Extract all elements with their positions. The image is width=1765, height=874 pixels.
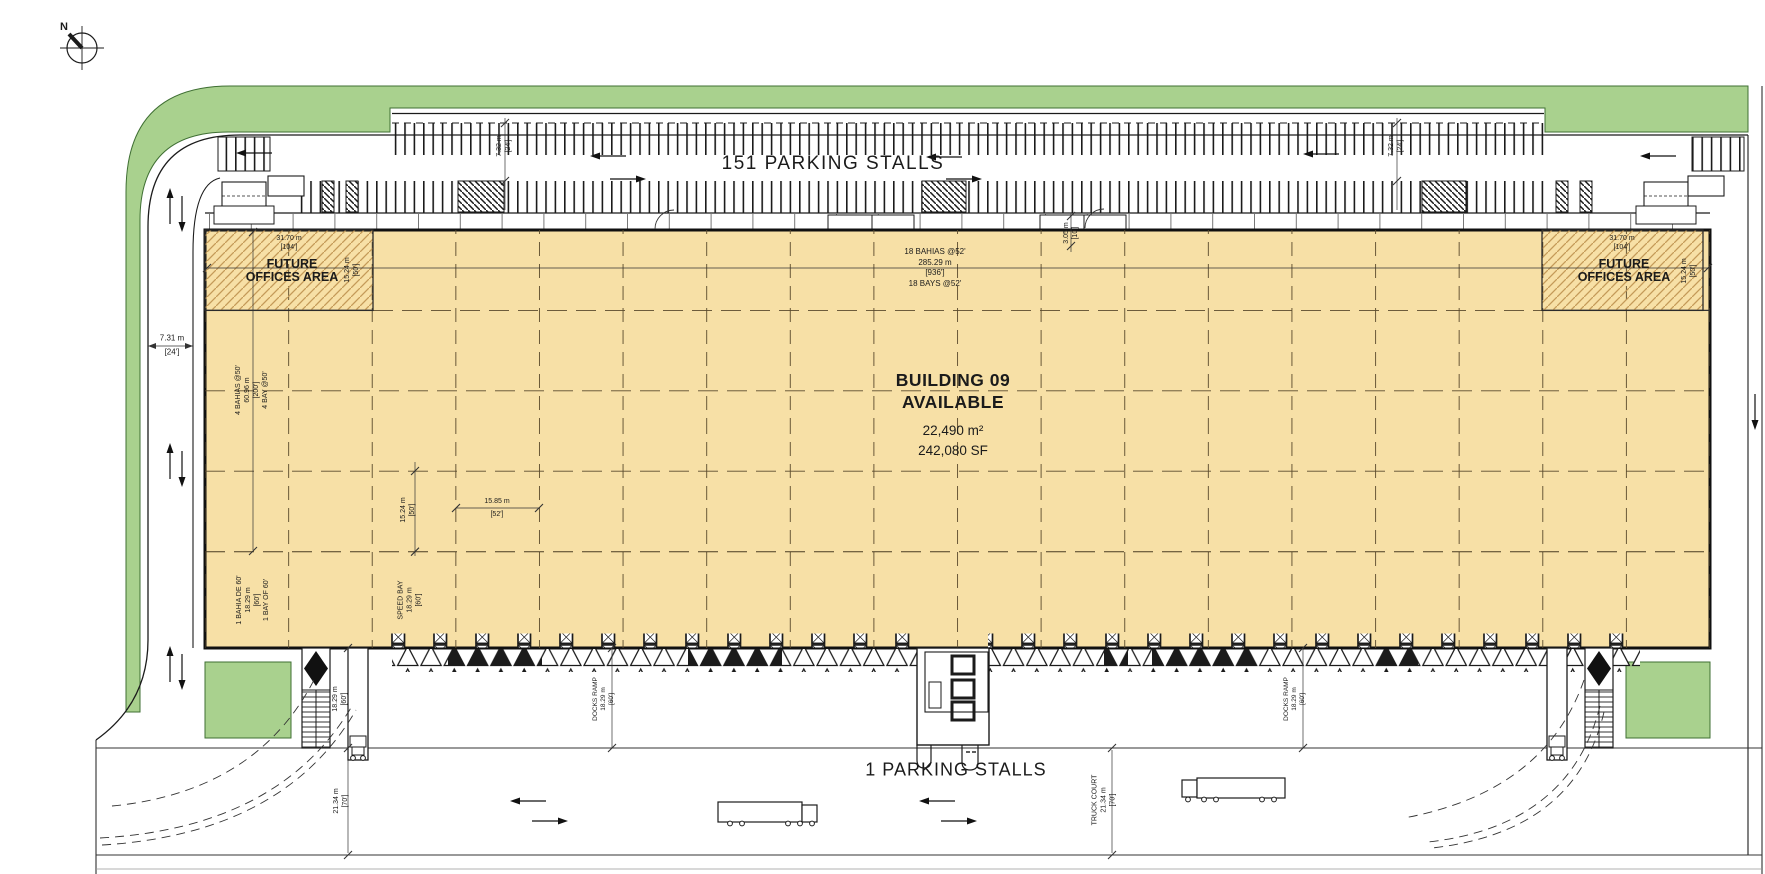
speed-bay-dim-spanish: 1 BAHIA DE 60' 18.29 m [60'] 1 BAY OF 60… <box>235 575 271 624</box>
office-left-depth-dim: 15.24 m[50'] <box>343 257 361 282</box>
office-right-width-dim: 31.70 m[104'] <box>1609 234 1634 252</box>
truck-court-dim: TRUCK COURT 21.34 m [70'] <box>1091 775 1118 826</box>
bays-horizontal-dim: 18 BAHIAS @52' 285.29 m [936'] 18 BAYS @… <box>904 247 965 289</box>
bay-depth-dim: 15.24 m[50'] <box>399 497 417 522</box>
truck-symbols <box>718 778 1285 826</box>
bays-vertical-dim: 4 BAHIAS @50' 60.96 m [200'] 4 BAY @50' <box>234 365 270 415</box>
north-label: N <box>60 21 68 33</box>
docks-ramp-dim-right: DOCKS RAMP 18.29 m [60'] <box>1283 677 1307 721</box>
south-parking-count-label: 1 PARKING STALLS <box>865 760 1046 781</box>
west-drive-dim: 7.31 m[24'] <box>160 332 184 359</box>
north-parking-count-label: 151 PARKING STALLS <box>722 153 945 175</box>
office-right-label: FUTUREOFFICES AREA <box>1578 258 1671 284</box>
truck-trailer-left <box>718 802 817 826</box>
north-drive-dim-left: 7.32 m[24'] <box>495 135 513 156</box>
bay-width-dim: 15.85 m[52'] <box>484 495 509 521</box>
site-plan: N 151 PARKING STALLS 1 PARKING STALLS 7.… <box>0 0 1765 874</box>
building-title: BUILDING 09AVAILABLE <box>896 369 1010 413</box>
column-offset-dim: 3.05 m[10'] <box>1062 222 1080 243</box>
building-area: 22,490 m²242,080 SF <box>918 421 988 461</box>
office-left-width-dim: 31.70 m[104'] <box>276 234 301 252</box>
docks-ramp-dim-left: DOCKS RAMP 18.29 m [60'] <box>592 677 616 721</box>
center-ramp <box>917 648 989 770</box>
office-left-label: FUTUREOFFICES AREA <box>246 258 339 284</box>
ramp-depth-dim: 18.29 m[60'] <box>331 686 349 711</box>
north-drive-dim-right: 7.32 m[24'] <box>1387 135 1405 156</box>
truck-trailer-right <box>1182 778 1285 802</box>
north-parking-rows <box>205 114 1744 231</box>
office-right-depth-dim: 15.24 m[50'] <box>1680 258 1698 283</box>
speed-bay-dim: SPEED BAY 18.29 m [60'] <box>397 580 424 619</box>
plan-linework <box>0 0 1765 874</box>
truck-court-west-dim: 21.34 m[70'] <box>332 788 350 813</box>
dock-doors <box>390 634 1640 673</box>
